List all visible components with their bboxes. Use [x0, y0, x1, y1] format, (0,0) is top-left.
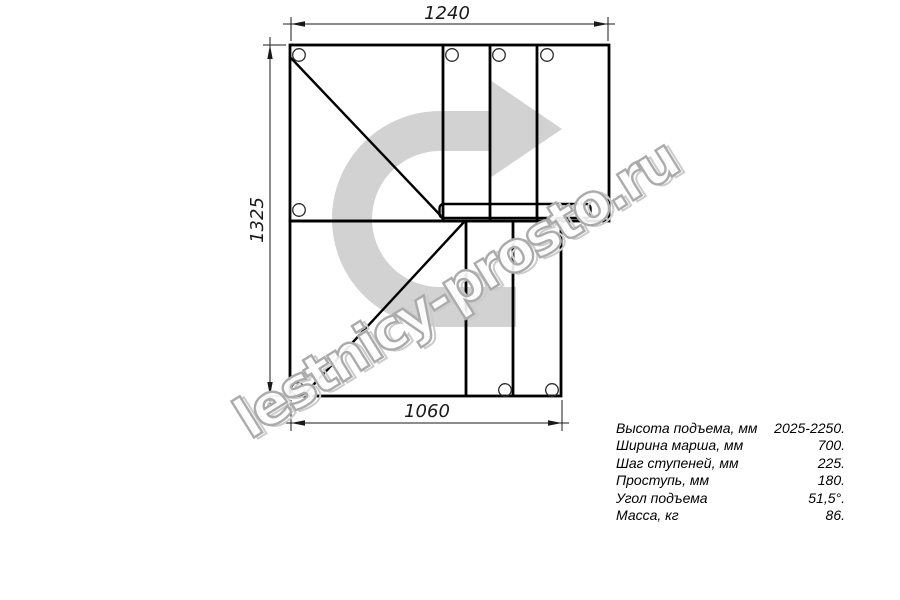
mount-hole — [446, 49, 459, 62]
dimension-top-value: 1240 — [424, 3, 470, 24]
spec-row: Шаг ступеней, мм 225. — [616, 455, 845, 472]
spec-value: 86. — [826, 507, 845, 524]
dimension-bottom-value: 1060 — [404, 401, 450, 422]
spec-label: Угол подъема — [616, 490, 708, 507]
site-watermark: lestnicy-prosto.ru lestnicy-prosto.ru — [223, 127, 693, 453]
spec-row: Угол подъема 51,5°. — [616, 490, 845, 507]
spec-row: Масса, кг 86. — [616, 507, 845, 524]
spec-value: 700. — [818, 437, 845, 454]
mount-hole — [541, 49, 554, 62]
dim-arrow-icon — [291, 21, 305, 26]
spec-row: Ширина марша, мм 700. — [616, 437, 845, 454]
spec-label: Ширина марша, мм — [616, 437, 743, 454]
spec-value: 51,5°. — [808, 490, 845, 507]
spec-row: Проступь, мм 180. — [616, 472, 845, 489]
spec-label: Шаг ступеней, мм — [616, 455, 739, 472]
mount-hole — [499, 384, 512, 397]
spec-label: Высота подъема, мм — [616, 420, 758, 437]
dimension-left-value: 1325 — [247, 197, 268, 243]
mount-hole — [293, 49, 306, 62]
spec-value: 180. — [818, 472, 845, 489]
dim-arrow-icon — [548, 420, 562, 425]
spec-value: 2025-2250. — [774, 420, 845, 437]
dimension-left: 1325 — [247, 37, 286, 404]
spec-table: Высота подъема, мм 2025-2250. Ширина мар… — [616, 420, 845, 524]
dim-arrow-icon — [594, 21, 608, 26]
spec-label: Проступь, мм — [616, 472, 709, 489]
spec-row: Высота подъема, мм 2025-2250. — [616, 420, 845, 437]
dimension-top: 1240 — [283, 3, 615, 41]
spec-label: Масса, кг — [616, 507, 679, 524]
mount-hole — [493, 49, 506, 62]
watermark-text: lestnicy-prosto.ru — [223, 127, 689, 452]
mount-hole — [293, 204, 306, 217]
direction-arrow-head-icon — [490, 80, 562, 178]
spec-value: 225. — [818, 455, 845, 472]
mount-hole — [546, 384, 559, 397]
dim-arrow-icon — [267, 45, 272, 59]
